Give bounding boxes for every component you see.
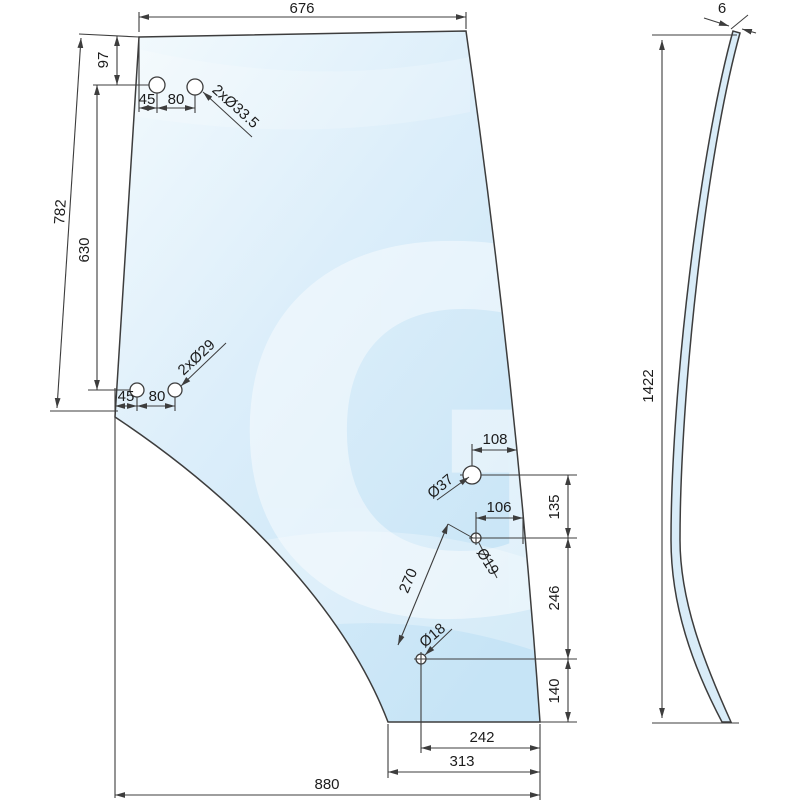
front-view: G 676 97 782 630: [50, 0, 635, 800]
technical-drawing: G 676 97 782 630: [0, 0, 800, 800]
ext-line: [731, 15, 748, 29]
arrow-right: [742, 29, 756, 33]
right-dim-chain: 135 246 140: [540, 475, 577, 722]
dim-label: 106: [486, 499, 511, 516]
dim-label: 630: [76, 237, 93, 262]
arrow-left: [704, 18, 729, 26]
dim-label: 45: [139, 91, 156, 108]
dim-label: 108: [482, 431, 507, 448]
dim-label: 80: [149, 388, 166, 405]
side-view: 1422 6: [640, 0, 756, 723]
dim-label: 140: [546, 678, 563, 703]
hole-29-right: [168, 383, 182, 397]
dim-label: 80: [168, 91, 185, 108]
dim-label: 880: [314, 776, 339, 793]
dim-left-height: 782: [50, 38, 118, 411]
dim-label: 135: [546, 494, 563, 519]
dim-label: 45: [118, 388, 135, 405]
drawing-canvas: G 676 97 782 630: [0, 0, 800, 800]
hole-37: [463, 466, 481, 484]
dim-top-width: 676: [139, 0, 466, 32]
hole-33-5-right: [187, 79, 203, 95]
ext-line: [79, 34, 139, 37]
dim-label: 313: [449, 753, 474, 770]
dim-label: 6: [718, 0, 726, 17]
dim-label: 97: [95, 52, 112, 69]
dim-label: 246: [546, 585, 563, 610]
dim-label: 1422: [640, 369, 657, 402]
dim-label: 676: [289, 0, 314, 17]
dim-label: 242: [469, 729, 494, 746]
dim-label: 782: [51, 199, 70, 225]
dim-thickness: 6: [704, 0, 756, 33]
